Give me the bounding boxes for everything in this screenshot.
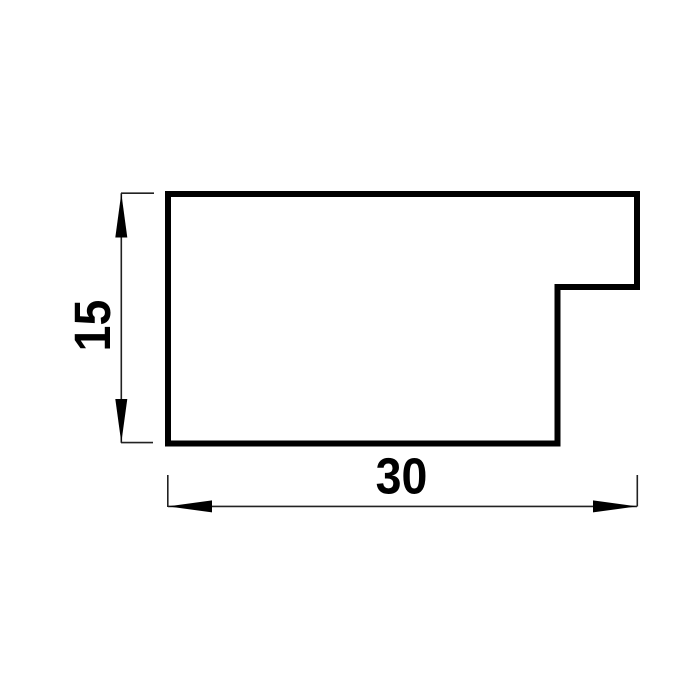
svg-text:15: 15: [65, 300, 122, 352]
svg-text:30: 30: [376, 449, 428, 506]
